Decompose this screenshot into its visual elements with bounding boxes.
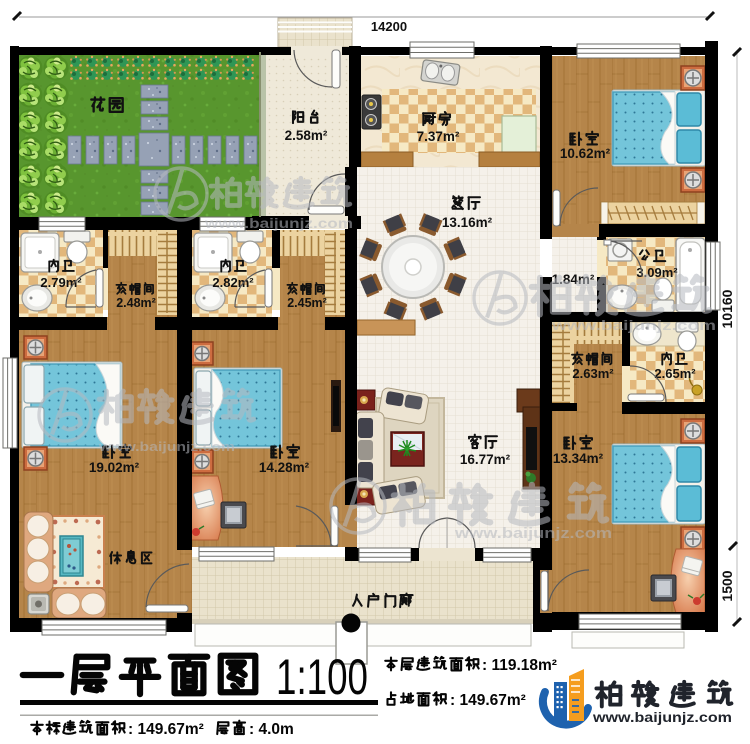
svg-text:10160: 10160 — [719, 289, 735, 328]
svg-text:7.37m²: 7.37m² — [417, 129, 460, 144]
svg-text:www.baijunjz.com: www.baijunjz.com — [204, 216, 353, 231]
svg-text:: 149.67m²: : 149.67m² — [450, 692, 526, 709]
svg-text:14200: 14200 — [371, 19, 407, 34]
svg-text:13.34m²: 13.34m² — [553, 451, 604, 466]
svg-text:2.82m²: 2.82m² — [212, 275, 254, 290]
svg-text:2.45m²: 2.45m² — [287, 296, 327, 310]
svg-text:3.09m²: 3.09m² — [636, 265, 678, 280]
svg-text:www.baijunjz.com: www.baijunjz.com — [551, 317, 716, 333]
svg-text:www.baijunjz.com: www.baijunjz.com — [592, 710, 732, 725]
svg-text:: 4.0m: : 4.0m — [249, 721, 294, 738]
svg-text:16.77m²: 16.77m² — [460, 452, 511, 467]
svg-text:2.79m²: 2.79m² — [40, 275, 82, 290]
svg-text:www.baijunjz.com: www.baijunjz.com — [454, 526, 612, 542]
svg-text:www.baijunjz.com: www.baijunjz.com — [98, 439, 235, 454]
svg-text:2.48m²: 2.48m² — [116, 296, 156, 310]
svg-text:13.16m²: 13.16m² — [442, 215, 493, 230]
svg-text:: 119.18m²: : 119.18m² — [482, 657, 557, 674]
svg-text:1500: 1500 — [719, 570, 735, 601]
svg-text:2.58m²: 2.58m² — [285, 128, 328, 143]
svg-text:19.02m²: 19.02m² — [89, 460, 140, 475]
svg-text:14.28m²: 14.28m² — [259, 460, 310, 475]
svg-text:2.63m²: 2.63m² — [572, 366, 614, 381]
svg-text:10.62m²: 10.62m² — [560, 146, 611, 161]
svg-text:2.65m²: 2.65m² — [654, 366, 696, 381]
svg-text:: 149.67m²: : 149.67m² — [128, 721, 204, 738]
svg-text:1:100: 1:100 — [276, 649, 368, 705]
